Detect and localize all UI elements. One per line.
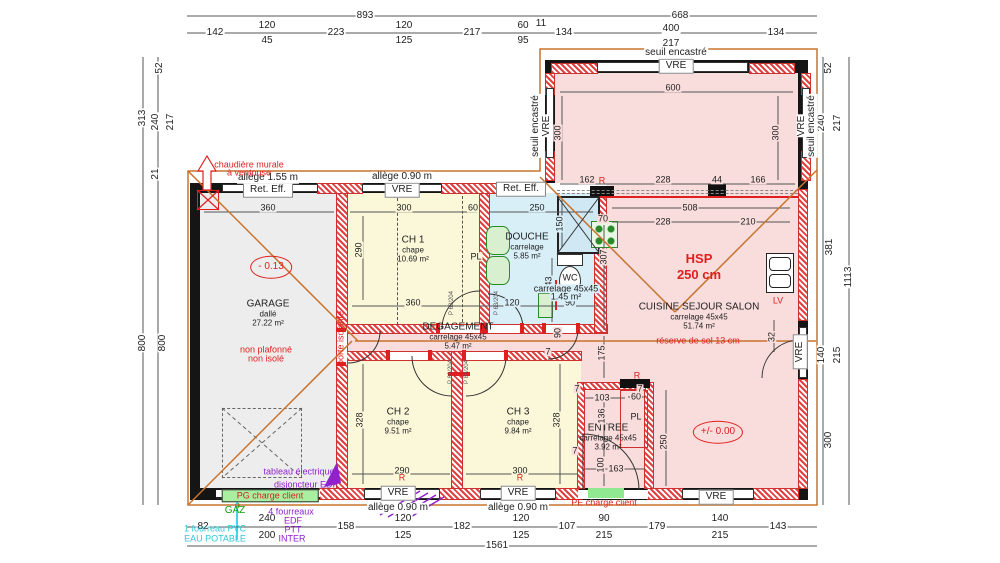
floor-plan: GARAGEdallé27.22 m²CH 1chape10.69 m²DOUC… xyxy=(0,0,1000,563)
dim-label: GAZ xyxy=(224,506,247,517)
dim-label: 7 xyxy=(544,347,551,356)
dim-label: 142 xyxy=(206,28,225,39)
dim-label: 120 xyxy=(258,21,277,32)
dim-label: 134 xyxy=(555,28,574,39)
dim-label: 200 xyxy=(258,531,277,542)
dim-label: 7 xyxy=(571,446,578,455)
dim-label: 182 xyxy=(453,522,472,533)
dim-label: 600 xyxy=(664,83,681,92)
dim-label: 134 xyxy=(767,28,786,39)
dim-label: 1561 xyxy=(485,541,509,552)
dim-label: 217 xyxy=(463,28,482,39)
dim-label: 7 xyxy=(573,384,580,393)
dim-label: VRE xyxy=(542,115,553,138)
dim-label: 228 xyxy=(654,217,671,226)
dim-label: R xyxy=(516,473,525,482)
dim-label: seuil encastré xyxy=(644,48,708,59)
dim-label: 215 xyxy=(711,531,730,542)
window-label: VRE xyxy=(381,486,416,501)
dim-label: 125 xyxy=(394,531,413,542)
dim-label: 125 xyxy=(512,531,531,542)
dim-label: 158 xyxy=(337,522,356,533)
dim-label: PL xyxy=(469,252,482,261)
dim-label: 360 xyxy=(404,298,421,307)
dim-label: LV xyxy=(772,296,784,305)
dim-label: 328 xyxy=(355,411,364,428)
dim-label: 1113 xyxy=(844,266,855,289)
dim-label: 107 xyxy=(558,522,577,533)
dim-label: 893 xyxy=(356,11,375,22)
dim-label: 136 xyxy=(597,407,606,424)
dim-label: 250 xyxy=(659,433,668,450)
dim-label: 307 xyxy=(599,248,608,265)
dim-label: à ventouse xyxy=(226,168,272,177)
dim-label: 800 xyxy=(138,334,149,353)
dim-label: 215 xyxy=(833,346,844,365)
dim-label: 360 xyxy=(259,203,276,212)
door-code: P 63/204 xyxy=(494,290,500,316)
dim-label: 1.45 m² xyxy=(550,292,583,301)
dim-label: 120 xyxy=(394,514,413,525)
dim-label: allège 0.90 m xyxy=(371,172,433,183)
dim-label: PL xyxy=(629,412,642,421)
dim-label: non isolé xyxy=(247,354,285,363)
window-label: Ret. Eff. xyxy=(243,183,293,198)
dim-label: 223 xyxy=(327,28,346,39)
window-label: VRE xyxy=(385,183,420,198)
wc-label: WC xyxy=(562,273,579,282)
door-code: P 83/204 xyxy=(448,359,454,385)
dim-label: 163 xyxy=(607,464,624,473)
window-label: VRE xyxy=(793,335,808,370)
dim-label: EAU POTABLE xyxy=(183,534,247,543)
dim-label: 175 xyxy=(597,344,606,361)
dim-label: allège 0.90 m xyxy=(367,503,429,514)
dim-label: 44 xyxy=(711,175,723,184)
dim-label: 240 xyxy=(151,113,162,132)
dim-label: 90 xyxy=(597,514,610,525)
dim-label: 143 xyxy=(769,522,788,533)
dim-label: R xyxy=(633,371,642,380)
dim-label: 70 xyxy=(597,214,609,223)
pg-charge-client: PG charge client xyxy=(222,489,319,502)
dim-label: 52 xyxy=(824,61,835,74)
dim-label: 313 xyxy=(138,109,149,128)
dim-label: 250 cm xyxy=(676,268,722,282)
dim-label: 120 xyxy=(503,298,520,307)
dim-label: PE charge client xyxy=(570,498,638,507)
dim-label: 381 xyxy=(825,238,836,257)
dim-label: 215 xyxy=(595,531,614,542)
dim-label: 95 xyxy=(516,36,529,47)
dim-label: 217 xyxy=(833,114,844,133)
dim-label: 668 xyxy=(671,11,690,22)
dim-label: 328 xyxy=(552,411,561,428)
dim-label: 508 xyxy=(681,203,698,212)
door-code: P 63/204 xyxy=(449,290,455,316)
dim-label: seuil encastré xyxy=(531,94,542,158)
dim-label: HSP xyxy=(685,252,714,266)
dim-label: 21 xyxy=(151,167,162,180)
dim-label: 300 xyxy=(395,203,412,212)
dim-label: INTER xyxy=(278,534,307,543)
dim-label: 300 xyxy=(771,124,780,141)
dim-label: 290 xyxy=(354,241,363,258)
dim-label: 400 xyxy=(662,24,681,35)
dim-label: 150 xyxy=(555,215,564,232)
dim-label: 250 xyxy=(528,203,545,212)
dim-label: allège 0.90 m xyxy=(487,503,549,514)
dim-label: 45 xyxy=(260,36,273,47)
dim-label: 228 xyxy=(654,175,671,184)
dim-label: 140 xyxy=(711,514,730,525)
dim-label: 103 xyxy=(593,393,610,402)
dim-label: 210 xyxy=(739,217,756,226)
dim-label: 240 xyxy=(817,114,828,133)
dim-label: 60 xyxy=(516,21,529,32)
dim-label: 120 xyxy=(395,21,414,32)
dim-label: réserve de sol 13 cm xyxy=(655,336,741,345)
dim-label: 100 xyxy=(596,456,605,473)
dim-label: 120 xyxy=(512,514,531,525)
dim-label: R xyxy=(398,473,407,482)
level-badge: - 0.13 xyxy=(250,256,292,279)
dim-label: 800 xyxy=(158,334,169,353)
dim-label: tableau électrique xyxy=(262,467,335,476)
labels-layer: 8936681421204522312012521760951113440021… xyxy=(0,0,1000,563)
dim-label: 11 xyxy=(535,19,547,30)
dim-label: 300 xyxy=(824,431,835,450)
dim-label: 217 xyxy=(166,113,177,132)
door-code: P 83/204 xyxy=(464,359,470,385)
dim-label: 300 xyxy=(553,124,562,141)
dim-label: 32 xyxy=(767,331,776,343)
dim-label: seuil encastré xyxy=(807,94,818,158)
dim-label: 125 xyxy=(395,36,414,47)
dim-label: 90 xyxy=(553,327,562,339)
dim-label: R xyxy=(598,176,607,185)
dim-label: 7 xyxy=(636,384,643,393)
dim-label: 52 xyxy=(155,61,166,74)
dim-label: 162 xyxy=(578,175,595,184)
window-label: VRE xyxy=(501,486,536,501)
dim-label: 166 xyxy=(749,175,766,184)
dim-label: 140 xyxy=(817,346,828,365)
window-label: Ret. Eff. xyxy=(496,182,546,197)
window-label: VRE xyxy=(699,490,734,505)
dim-label: porte isolante xyxy=(336,310,345,366)
window-label: VRE xyxy=(659,59,694,74)
level-badge: +/- 0.00 xyxy=(693,421,743,444)
dim-label: 179 xyxy=(648,522,667,533)
dim-label: 60 xyxy=(467,203,479,212)
